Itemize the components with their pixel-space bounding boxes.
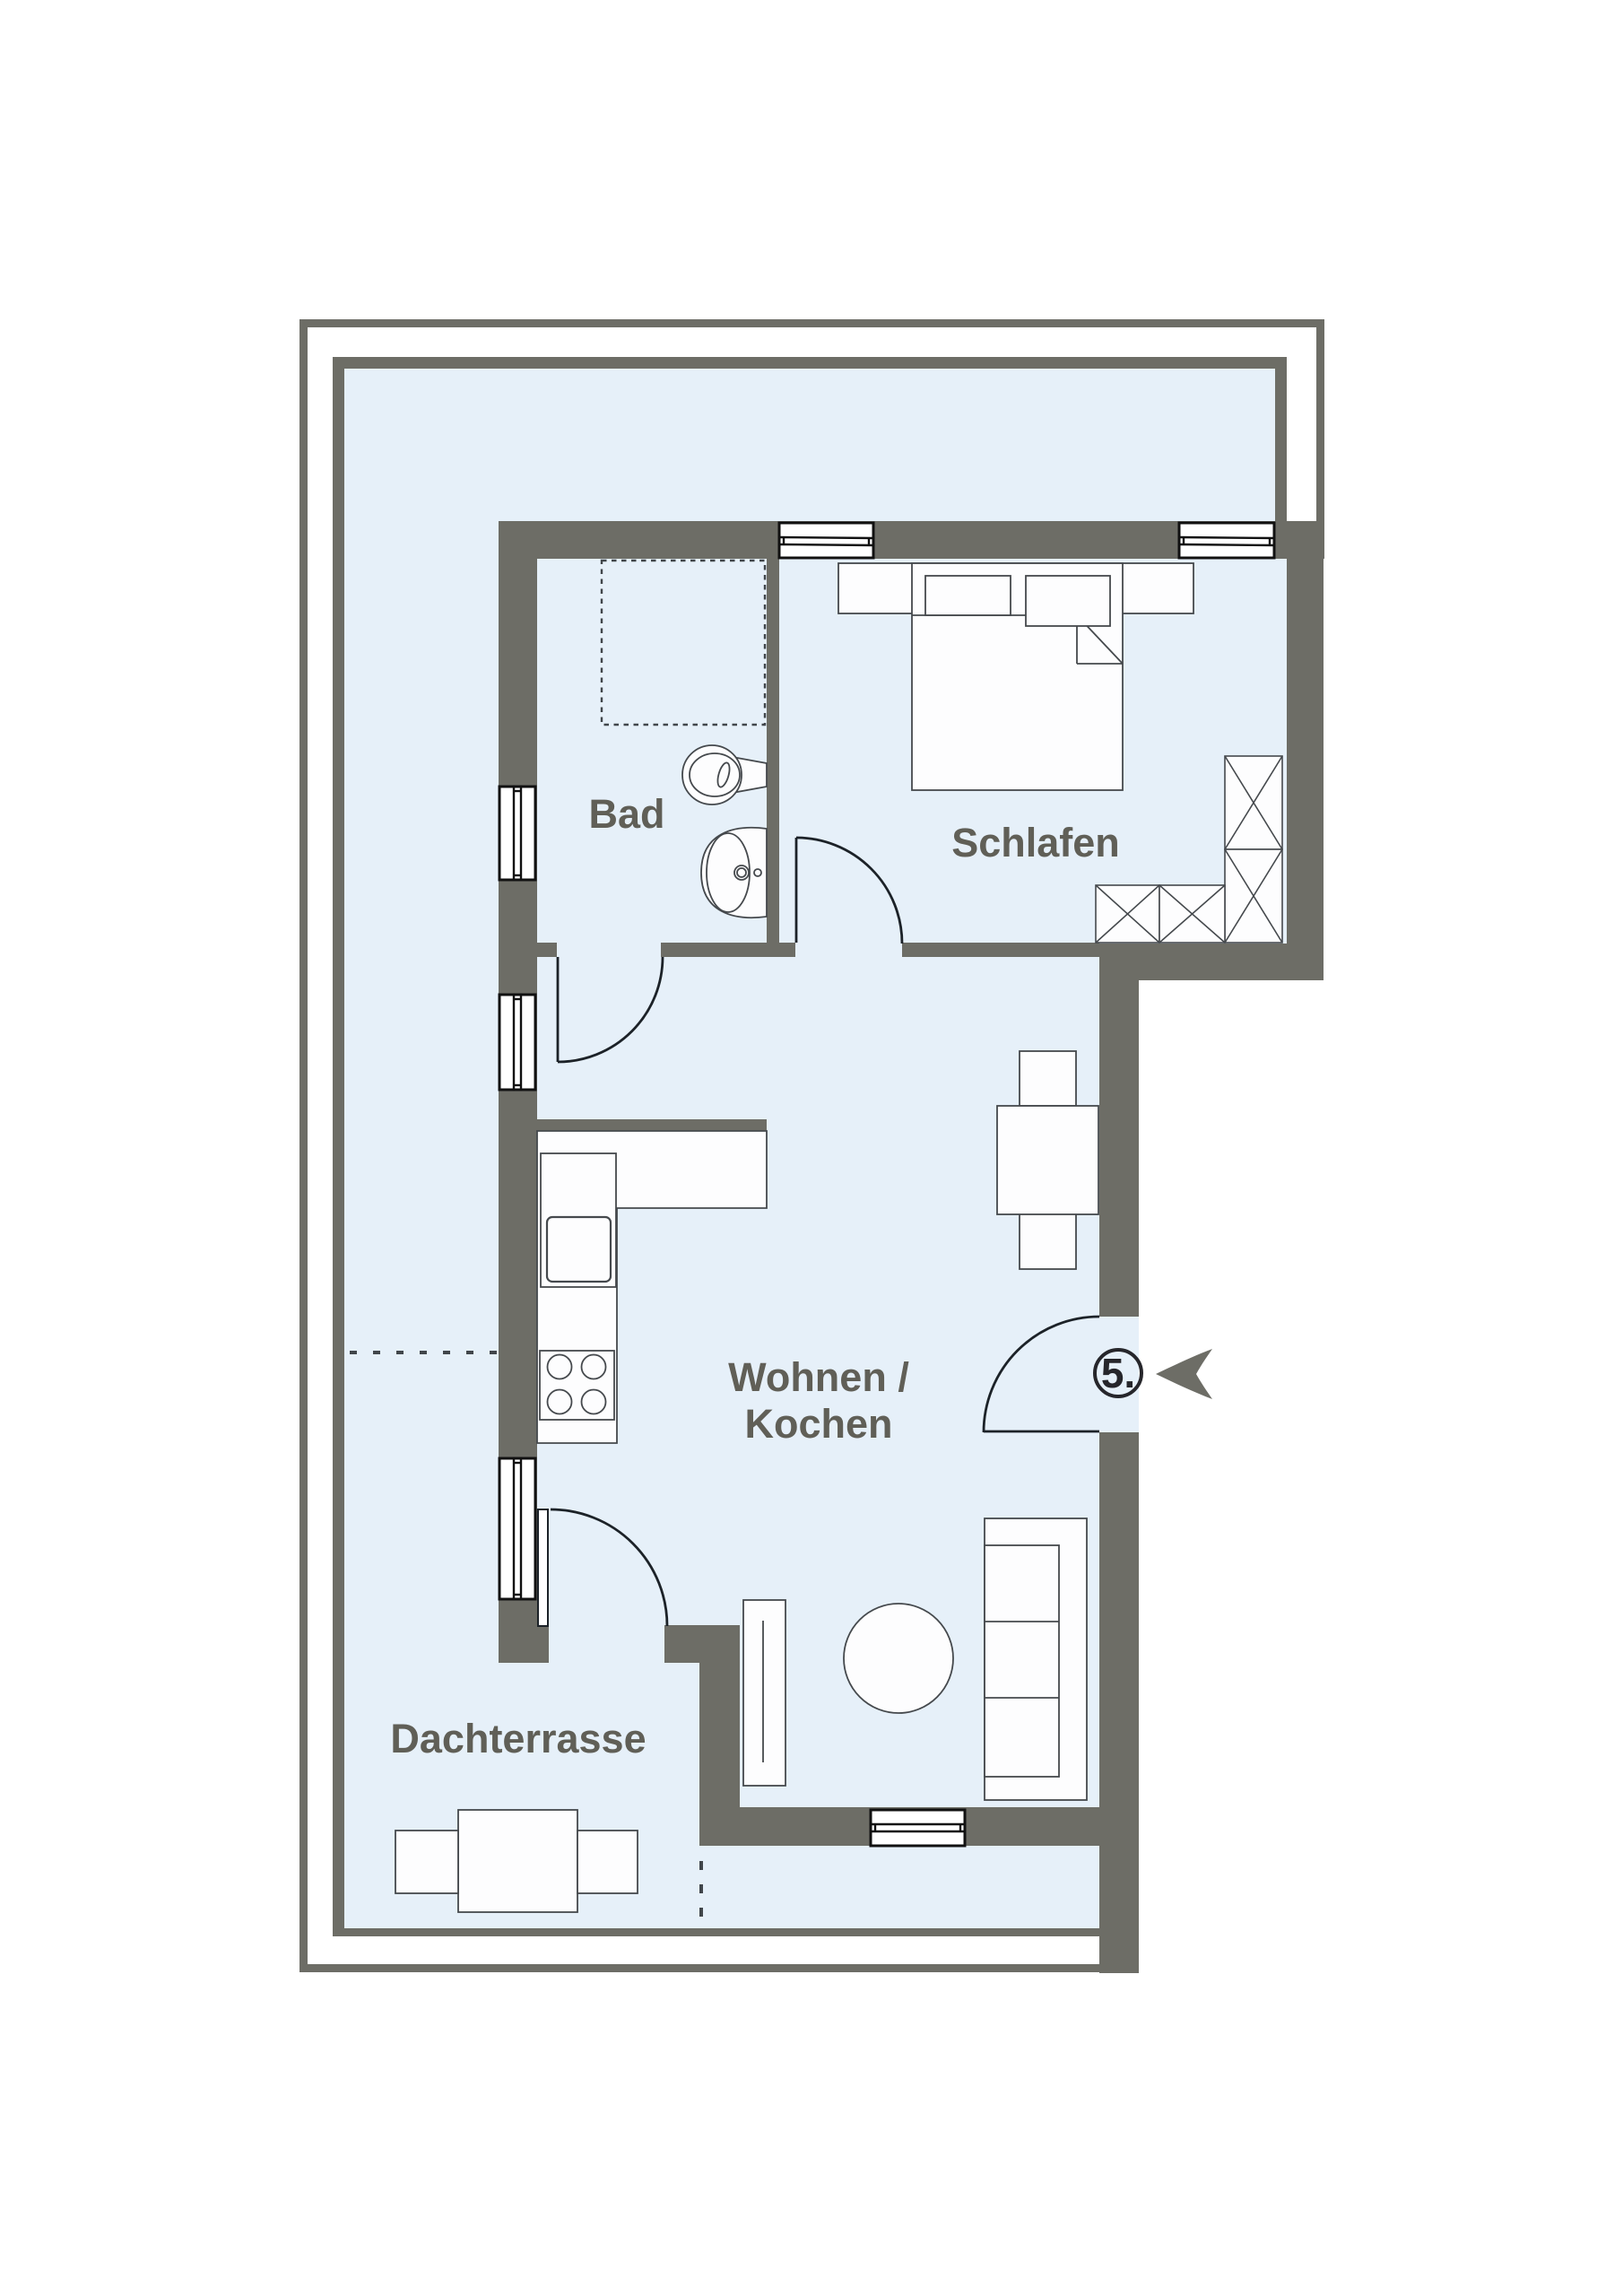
svg-text:Schlafen: Schlafen: [951, 820, 1120, 865]
svg-text:Bad: Bad: [588, 791, 664, 837]
svg-text:Dachterrasse: Dachterrasse: [390, 1716, 646, 1761]
svg-text:Wohnen /: Wohnen /: [728, 1354, 909, 1400]
svg-text:5.: 5.: [1101, 1350, 1135, 1396]
svg-text:Kochen: Kochen: [744, 1401, 892, 1447]
